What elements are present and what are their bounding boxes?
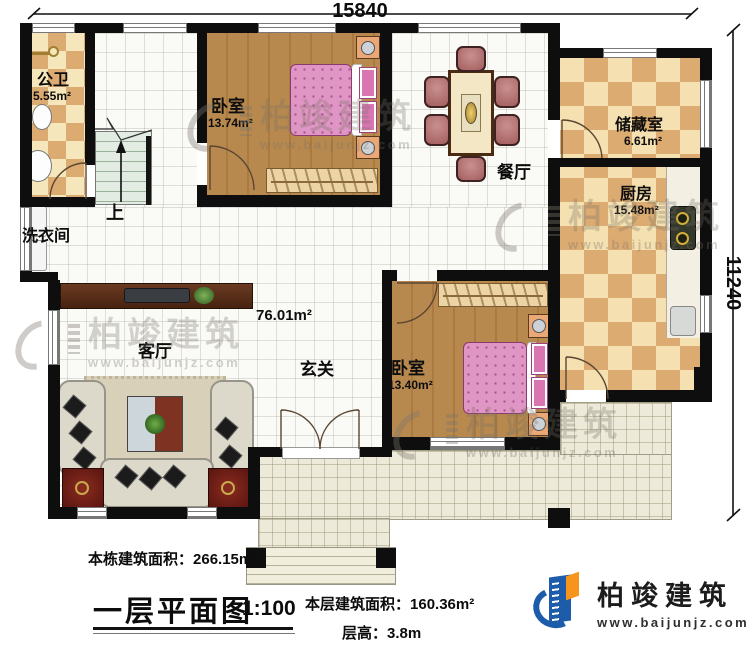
logo-url-text: www.baijunjz.com <box>597 615 749 630</box>
room-area-storage: 6.61m² <box>624 135 662 148</box>
wall-foyer-vertical <box>248 447 260 519</box>
toilet-bowl-icon <box>32 104 52 130</box>
porch-column <box>548 508 570 528</box>
plant-icon <box>145 414 165 434</box>
nightstand-icon <box>356 36 380 59</box>
bed-pillow <box>532 344 547 374</box>
stairs-handrail <box>146 136 151 205</box>
porch-column <box>376 548 396 568</box>
window-bedroom-top <box>258 23 336 33</box>
wall-bedroom-bottom-top-b <box>437 270 560 281</box>
room-label-foyer: 玄关 <box>300 361 334 380</box>
window-storage-top <box>603 48 657 58</box>
wall-kitchen-bottom-a <box>558 390 566 402</box>
floor-area-label: 本层建筑面积： <box>305 596 410 613</box>
wall-dining-storage-b <box>548 158 560 270</box>
wall-bathroom-right <box>85 33 95 165</box>
room-area-kitchen: 15.48m² <box>614 204 659 217</box>
dimension-height: 11240 <box>724 233 744 333</box>
window-living-bottom-2 <box>187 507 217 519</box>
stairs <box>95 131 152 205</box>
dining-chair <box>456 156 486 182</box>
wall-front-left <box>248 447 282 457</box>
building-area-value: 266.15m² <box>193 551 257 568</box>
room-label-living: 客厅 <box>138 343 172 362</box>
nightstand-icon <box>528 412 550 436</box>
window-kitchen-right-lower <box>700 295 712 333</box>
wall-bedroom-bottom-top-a <box>382 270 397 281</box>
title-underline-thin <box>93 633 295 634</box>
stove-burner-icon <box>676 232 689 245</box>
porch-steps <box>246 547 396 585</box>
room-label-storage: 储藏室 <box>615 117 663 135</box>
window-dining-top <box>418 23 521 33</box>
wall-dining-storage-a <box>548 23 560 120</box>
logo-roof-icon <box>566 572 579 601</box>
kitchen-sink-icon <box>670 306 696 336</box>
stairs-up-label: 上 <box>106 204 124 224</box>
hall-area-label: 76.01m² <box>256 308 312 325</box>
dining-chair <box>494 76 520 108</box>
floor-plan-page: 15840 11240 公卫 5.55m² 卧室 13.74m² 餐厅 储藏室 … <box>0 0 750 646</box>
building-area-note: 本栋建筑面积：266.15m² <box>88 548 257 569</box>
window-hall-top <box>123 23 187 33</box>
bed-pillow <box>360 102 376 132</box>
room-area-bedroom-top: 13.74m² <box>208 117 253 130</box>
room-label-laundry: 洗衣间 <box>22 228 70 246</box>
terrace <box>258 450 672 520</box>
plan-title: 一层平面图 <box>93 588 253 630</box>
table-medallion-icon <box>221 481 235 495</box>
door-opening-storage <box>548 120 560 158</box>
room-label-bedroom-top: 卧室 <box>211 98 245 117</box>
window-kitchen-right-upper <box>700 80 712 148</box>
dining-chair <box>456 46 486 72</box>
floor-height-label: 层高： <box>342 625 387 642</box>
dining-chair <box>424 114 450 146</box>
door-opening-kitchen <box>566 390 606 402</box>
bed-duvet <box>463 342 527 414</box>
bed-duvet <box>290 64 352 136</box>
title-underline <box>93 627 293 630</box>
wardrobe-bedroom-top <box>266 168 378 193</box>
logo-brand-text: 柏竣建筑 <box>597 574 749 613</box>
room-area-bedroom-bottom: 13.40m² <box>388 379 433 392</box>
wall-storage-kitchen-divider <box>558 158 703 167</box>
company-logo-icon <box>533 574 589 634</box>
stove-burner-icon <box>676 212 689 225</box>
table-medallion-icon <box>75 481 89 495</box>
door-opening-bathroom <box>85 165 95 197</box>
nightstand-icon <box>356 136 380 159</box>
nightstand-icon <box>528 314 550 338</box>
floor-height-note: 层高：3.8m <box>342 622 421 643</box>
floor-height-value: 3.8m <box>387 625 421 642</box>
floor-area-note: 本层建筑面积：160.36m² <box>305 593 474 614</box>
door-opening-front <box>282 447 360 459</box>
wall-bedroom-top-left-a <box>197 23 207 143</box>
plan-scale: 1:100 <box>242 597 296 621</box>
wall-bedroom-top-bottom <box>197 195 390 207</box>
room-area-bathroom: 5.55m² <box>33 90 71 103</box>
wall-bedroom-top-right <box>380 23 392 207</box>
wardrobe-bedroom-bottom <box>438 283 548 307</box>
door-opening-bedroom-top <box>197 143 207 185</box>
table-centerpiece <box>465 102 477 124</box>
dining-chair <box>424 76 450 108</box>
wall-east-long <box>548 270 560 447</box>
window-bathroom-top <box>32 23 75 33</box>
window-living-bottom-1 <box>77 507 107 519</box>
terrace-upper-right <box>560 402 672 455</box>
terrace-lower-left <box>258 518 390 548</box>
room-label-dining: 餐厅 <box>497 164 531 183</box>
wall-bathroom-bottom <box>20 197 95 207</box>
wall-kitchen-bottom-b <box>606 390 710 402</box>
room-label-kitchen: 厨房 <box>620 186 652 204</box>
dining-chair <box>494 114 520 146</box>
tv-icon <box>124 288 190 303</box>
building-area-label: 本栋建筑面积： <box>88 551 193 568</box>
floor-area-value: 160.36m² <box>410 596 474 613</box>
dimension-width: 15840 <box>310 0 410 22</box>
bed-pillow <box>532 378 547 408</box>
bed-pillow <box>360 68 376 98</box>
window-living-left <box>48 310 60 365</box>
window-bedroom-bottom-south <box>430 437 505 450</box>
company-logo: 柏竣建筑 www.baijunjz.com <box>533 574 749 634</box>
room-label-bedroom-bottom: 卧室 <box>391 360 425 379</box>
plant-icon <box>194 287 214 304</box>
shower-knob-icon <box>48 46 59 57</box>
room-label-bathroom: 公卫 <box>37 72 69 90</box>
